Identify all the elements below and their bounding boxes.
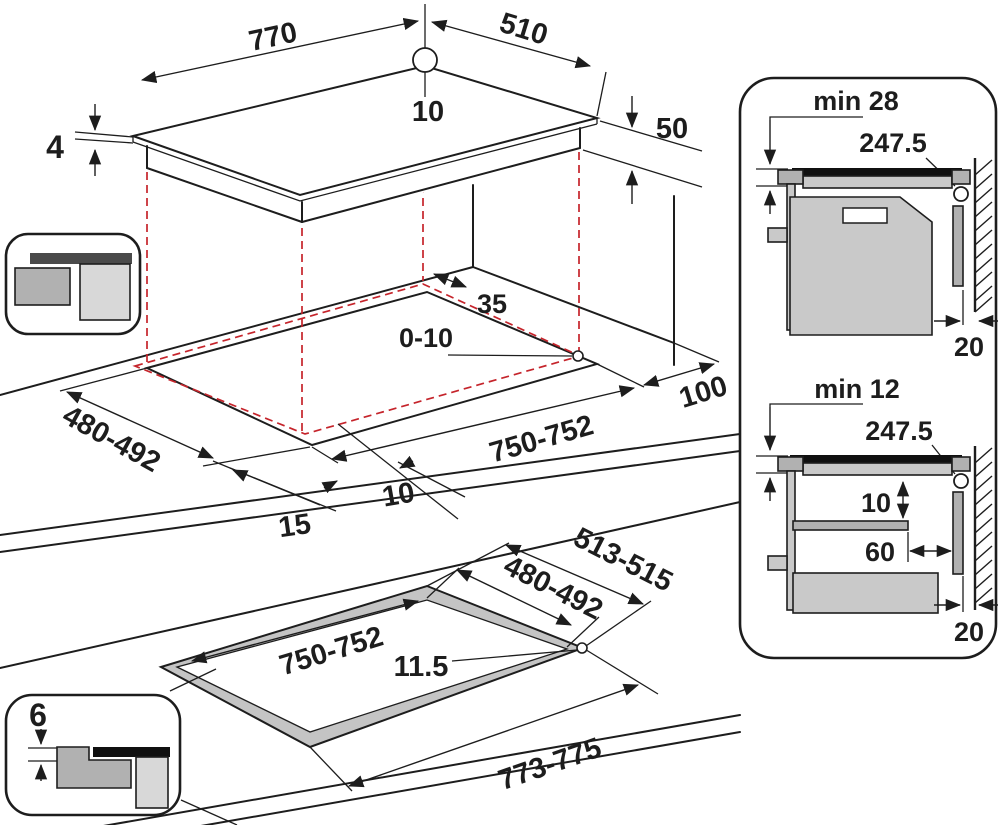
dim-10-label: 10 xyxy=(380,477,417,514)
dim-4-ref-top xyxy=(75,132,133,137)
dim-35-label: 35 xyxy=(477,289,507,319)
dim-750-ext-right xyxy=(597,364,644,387)
hob-clamp-left-top xyxy=(778,170,803,184)
dim-50-ref-bottom xyxy=(583,150,702,187)
dim-15-label: 15 xyxy=(277,508,313,544)
installation-diagram: 770 510 10 4 50 480-492 750-752 100 xyxy=(0,0,1000,825)
hob-clamp-right-bottom xyxy=(952,457,970,471)
flush-773-ext-1 xyxy=(310,747,352,791)
dim-35-line xyxy=(434,274,466,287)
hob-glass-section-top xyxy=(792,168,962,176)
dim-50-label: 50 xyxy=(656,113,688,145)
cutout-opening xyxy=(147,292,597,445)
dim-480-ext-left xyxy=(60,368,147,391)
dim-510-label: 510 xyxy=(496,7,552,52)
dim-6-label: 6 xyxy=(29,697,47,733)
glass-footprint-dashed xyxy=(135,284,580,434)
min12-label: min 12 xyxy=(814,374,900,404)
dim-750-ext-left xyxy=(312,447,338,463)
flush-step-label: 11.5 xyxy=(394,651,449,683)
dim-4-ref-bottom xyxy=(75,139,133,143)
clearance-panel: min 28 247.5 xyxy=(740,78,998,658)
topmount-cabinet-block xyxy=(15,268,70,305)
dim-100-label: 100 xyxy=(676,370,732,415)
dim-10-arrow-left xyxy=(324,481,337,488)
flush-773-label: 773-775 xyxy=(495,732,606,797)
recess-step-band xyxy=(161,586,583,747)
gap20-label-bottom: 20 xyxy=(954,617,984,647)
drawer-front xyxy=(793,573,938,613)
dim-510-extension xyxy=(597,72,606,116)
oven-vent-slot xyxy=(843,208,887,223)
hob-body-section-top xyxy=(803,176,952,188)
min28-label: min 28 xyxy=(813,86,899,116)
topmount-hob-body-block xyxy=(80,264,130,320)
hob-glass-section-bottom xyxy=(790,455,962,463)
cabinet-rail-bottom xyxy=(768,556,787,570)
junction-box-circle-top xyxy=(954,187,968,201)
worktop-front-edge-bottom xyxy=(0,451,740,552)
hob-body-section-bottom xyxy=(803,463,952,475)
worktop-cutout-view xyxy=(0,152,740,552)
hob-clamp-left-bottom xyxy=(778,457,803,471)
diagram-canvas: 770 510 10 4 50 480-492 750-752 100 xyxy=(0,0,1000,825)
flush-hob-body-block xyxy=(136,757,168,808)
flush-section-inset: 6 xyxy=(6,669,237,825)
overhang-ext-2 xyxy=(230,468,336,511)
flush-773-ext-2 xyxy=(583,648,658,694)
junction-247-bottom-label: 247.5 xyxy=(865,416,933,446)
step-corner-marker xyxy=(577,643,587,653)
topmount-glass-bar xyxy=(30,253,132,264)
hob-clamp-right-top xyxy=(952,170,970,184)
dim-4-label: 4 xyxy=(46,129,64,165)
topmount-section-inset xyxy=(6,234,140,334)
dim-10-hole-label: 10 xyxy=(412,96,444,128)
dim-60-label: 60 xyxy=(865,537,895,567)
rear-spacer-top xyxy=(953,206,963,286)
flush-513-ext-1 xyxy=(427,543,509,586)
cabinet-rail-top xyxy=(768,228,787,242)
dim-770-label: 770 xyxy=(246,16,300,58)
flush-glass-bar xyxy=(93,747,170,757)
gap20-label-top: 20 xyxy=(954,332,984,362)
separator-shelf xyxy=(793,521,908,530)
side-gap-marker xyxy=(573,351,583,361)
junction-box-circle-bottom xyxy=(954,474,968,488)
dim-100-ext xyxy=(674,343,719,362)
cable-hole-marker xyxy=(413,48,437,72)
dim-10-shelf-label: 10 xyxy=(861,488,891,518)
rear-spacer-bottom xyxy=(953,492,963,574)
dim-0-10-label: 0-10 xyxy=(399,323,453,353)
dim-0-10-leader xyxy=(448,355,572,356)
junction-247-top-label: 247.5 xyxy=(859,128,927,158)
dim-480-label: 480-492 xyxy=(57,399,166,479)
